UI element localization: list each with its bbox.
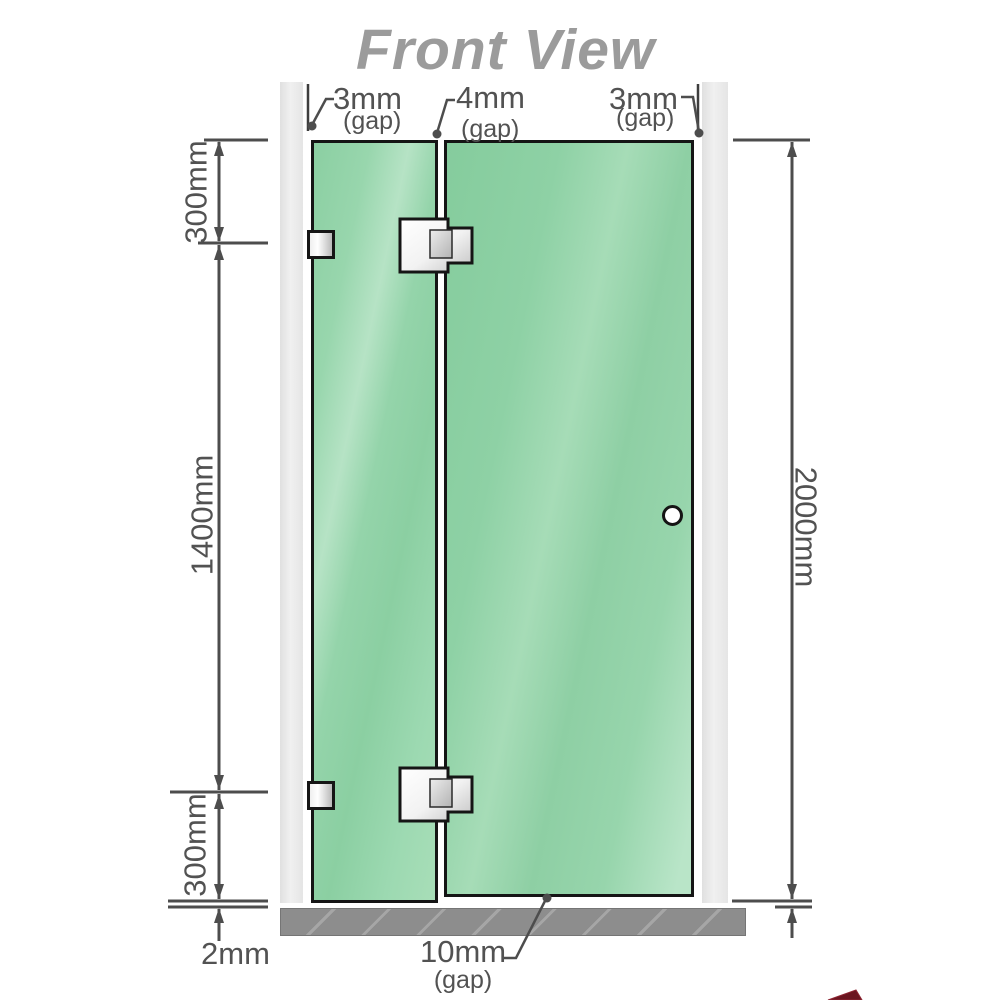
leader-dots [308,122,704,903]
dimension-arrows [214,141,797,923]
dim-label-middle-1400mm: 1400mm [187,455,218,576]
dim-label-total-2000mm: 2000mm [791,467,822,588]
label-gap-bottom-value: 10mm [420,934,506,969]
label-gap-left-suffix: (gap) [343,109,401,134]
hinge-bottom-icon [400,768,472,821]
label-gap-center-value: 4mm [456,82,525,113]
label-gap-bottom: 10mm (gap) [420,936,506,993]
dimension-lines [219,142,792,941]
hinge-top-icon [400,219,472,272]
dim-label-bottom-300mm: 300mm [180,793,211,896]
label-gap-center-suffix: (gap) [461,117,519,142]
dimension-ticks [168,140,812,907]
logo-fragment [828,990,862,1000]
label-floor-gap-2mm: 2mm [201,938,270,969]
dimension-graphics [0,0,1000,1000]
leader-lines [312,97,699,958]
label-gap-bottom-suffix: (gap) [420,968,506,993]
label-gap-right-suffix: (gap) [616,106,674,131]
dim-label-top-300mm: 300mm [181,140,212,243]
